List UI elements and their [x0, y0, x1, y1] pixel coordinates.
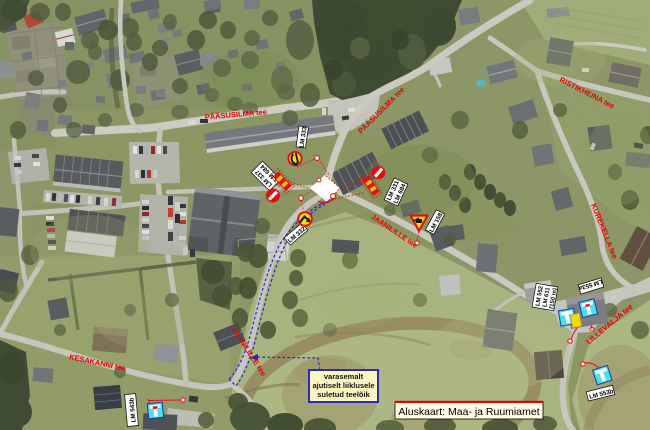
- svg-text:suletud teelõik: suletud teelõik: [317, 390, 370, 399]
- svg-text:varasemalt: varasemalt: [324, 372, 364, 381]
- svg-text:Aluskaart: Maa- ja Ruumiamet: Aluskaart: Maa- ja Ruumiamet: [398, 406, 539, 418]
- svg-text:ajutiselt liiklusele: ajutiselt liiklusele: [312, 381, 374, 390]
